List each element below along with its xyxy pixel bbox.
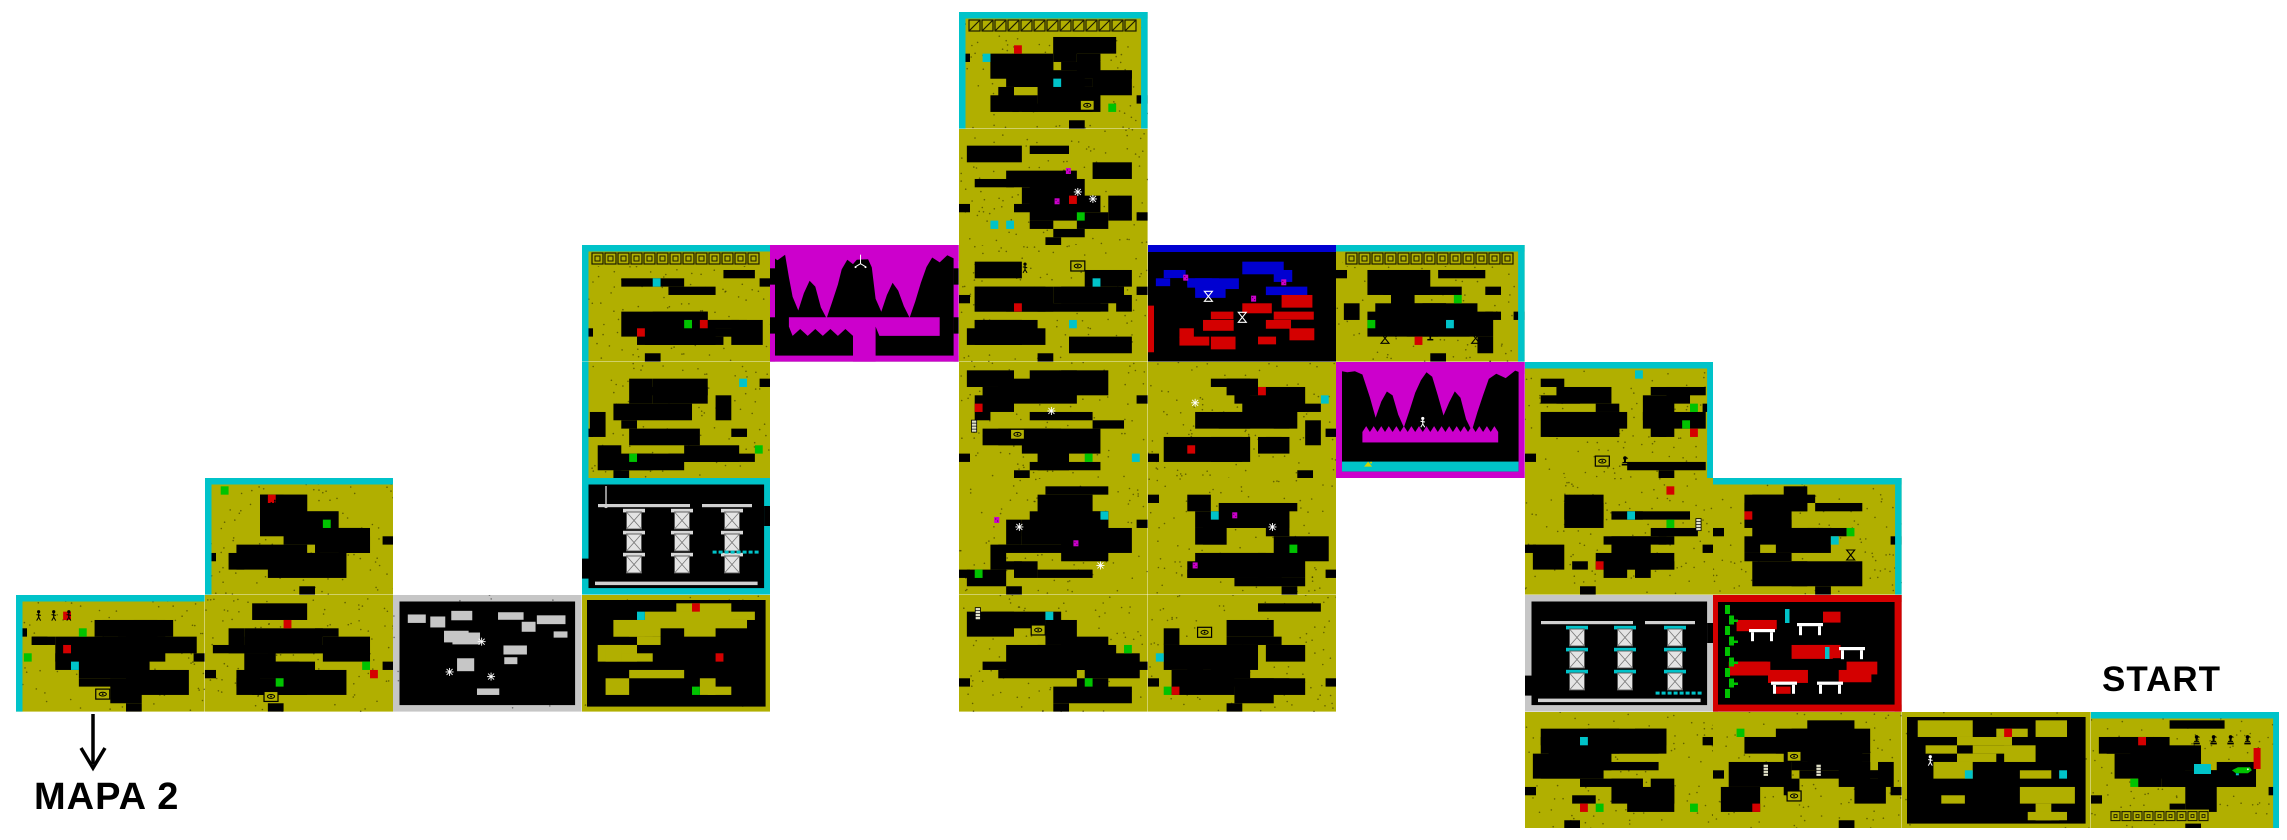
start-label: START [2102, 660, 2221, 700]
enemy-icon [1073, 541, 1078, 547]
mummy-icon [971, 420, 976, 432]
room-c7-r2 [1336, 245, 1525, 362]
down-arrow-icon [70, 712, 116, 779]
room-c6-r3 [1148, 362, 1337, 479]
sparkle-icon [478, 638, 486, 646]
room-c11-r6 [2091, 712, 2280, 829]
mummy-icon [1816, 764, 1821, 776]
enemy-icon [1232, 513, 1237, 519]
room-c8-r4 [1525, 478, 1714, 595]
sparkle-icon [1096, 562, 1104, 570]
sparkle-icon [487, 673, 495, 681]
room-c6-r4 [1148, 478, 1337, 595]
room-c6-r5 [1148, 595, 1337, 712]
room-c6-r2 [1148, 245, 1337, 362]
room-c9-r5 [1713, 595, 1902, 712]
enemy-icon [1251, 296, 1256, 302]
eye-plaque-icon [96, 689, 110, 699]
room-c5-r4 [959, 478, 1148, 595]
room-c3-r3 [582, 362, 771, 479]
room-c3-r2 [582, 245, 771, 362]
game-map: MAPA 2 START [0, 0, 2287, 840]
enemy-icon [1192, 563, 1197, 569]
room-c2-r5 [393, 595, 582, 712]
eye-plaque-icon [1071, 261, 1085, 271]
sparkle-icon [1268, 523, 1276, 531]
room-c5-r0 [959, 12, 1148, 129]
enemy-icon [1066, 168, 1071, 174]
room-c8-r6 [1525, 712, 1714, 829]
room-c5-r5 [959, 595, 1148, 712]
sparkle-icon [1015, 523, 1023, 531]
enemy-icon [1183, 275, 1188, 281]
enemy-icon [994, 517, 999, 523]
mummy-icon [1696, 519, 1701, 531]
sparkle-icon [1047, 407, 1055, 415]
mapa2-label: MAPA 2 [34, 776, 179, 819]
enemy-icon [1055, 198, 1060, 204]
room-c1-r4 [205, 478, 394, 595]
room-c7-r3 [1336, 362, 1525, 479]
room-c3-r4 [582, 478, 771, 595]
eye-plaque-icon [1787, 791, 1801, 801]
eye-plaque-icon [264, 691, 278, 701]
room-c5-r1 [959, 129, 1148, 246]
room-c1-r5 [205, 595, 394, 712]
eye-plaque-icon [1031, 625, 1045, 635]
mummy-icon [975, 608, 980, 620]
room-c9-r4 [1713, 478, 1902, 595]
enemy-icon [1281, 279, 1286, 285]
eye-plaque-icon [1787, 751, 1801, 761]
eye-plaque-icon [1595, 456, 1609, 466]
sparkle-icon [1089, 195, 1097, 203]
room-c8-r5 [1525, 595, 1714, 712]
room-c10-r6 [1902, 712, 2091, 829]
room-c3-r5 [582, 595, 771, 712]
mummy-icon [1764, 764, 1769, 776]
room-c5-r3 [959, 362, 1148, 479]
eye-plaque-icon [1080, 100, 1094, 110]
eye-plaque-icon [1010, 429, 1024, 439]
sparkle-icon [446, 668, 454, 676]
sparkle-icon [1191, 399, 1199, 407]
eye-plaque-icon [1197, 627, 1211, 637]
room-c8-r3 [1525, 362, 1714, 479]
room-c0-r5 [16, 595, 205, 712]
room-c9-r6 [1713, 712, 1902, 829]
room-c5-r2 [959, 245, 1148, 362]
room-c4-r2 [770, 245, 959, 362]
sparkle-icon [1074, 188, 1082, 196]
